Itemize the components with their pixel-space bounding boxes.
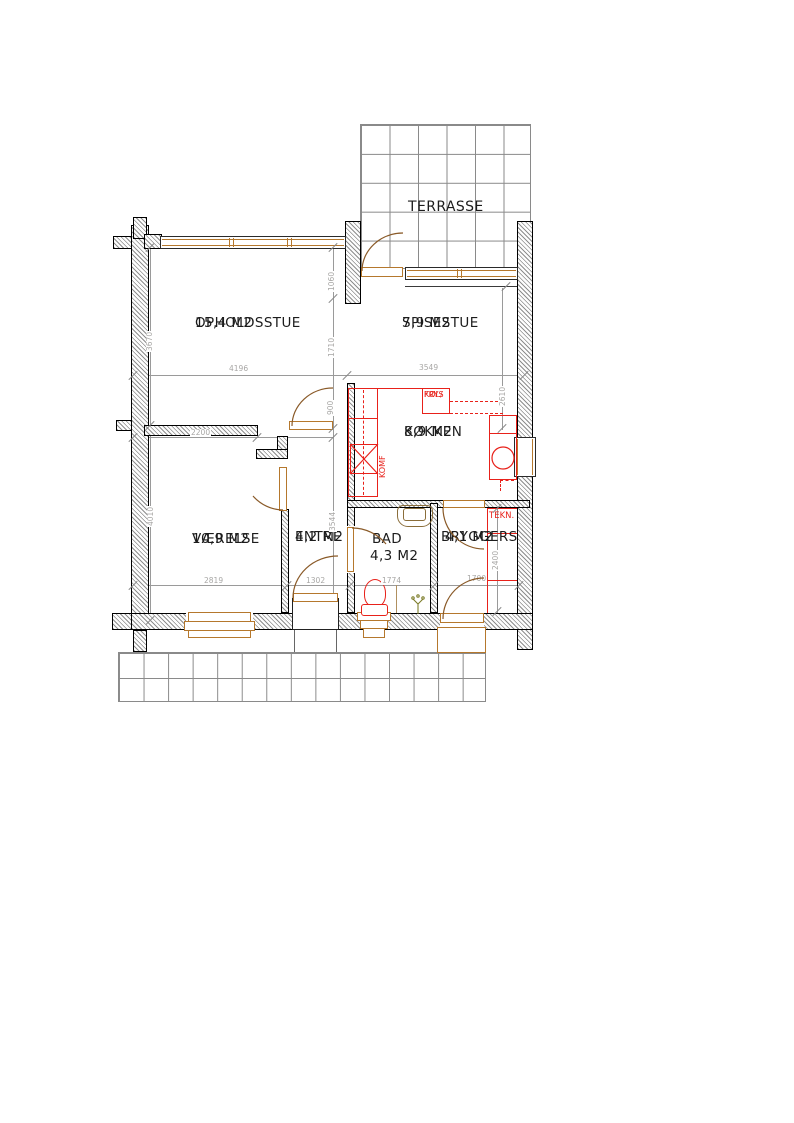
dim-bryggers-width: 1700 [466, 575, 487, 583]
bryggers-counter-top [487, 508, 517, 509]
entre-landing-edge-left [294, 630, 295, 652]
room-label-bryggers: BRYGGERS4,1 M2 [441, 529, 493, 546]
bryggers-landing [437, 627, 486, 653]
entre-landing [292, 598, 339, 630]
dim-vaerelse-width: 2819 [203, 577, 224, 585]
room-label-koekken: KØKKEN8,9 M2 [404, 424, 452, 441]
fridge-label: KØL/FRYS [424, 390, 444, 399]
wall-topleft-fin [113, 236, 132, 249]
wall-mid-stub [345, 221, 361, 304]
dim-opholdsstue-height: 3670 [146, 331, 154, 352]
dim-kitchen-offset: 900 [327, 400, 335, 416]
wall-left [131, 225, 149, 615]
dim-line-upper [133, 375, 530, 376]
washbasin-inner [403, 508, 426, 521]
opholdsstue-window [160, 236, 346, 249]
dim-line-bottom [133, 585, 524, 586]
bryggers-counter-line [487, 508, 488, 613]
kitchen-top-counter-line [378, 388, 422, 389]
kitchen-dash-sq-top [500, 480, 514, 481]
wall-entre-vaerelse [281, 509, 289, 613]
vaerelse-window-sill2 [188, 630, 251, 638]
shower-partition [396, 583, 397, 613]
room-label-bad: BAD4,3 M2 [370, 531, 418, 565]
room-label-spisestue: SPISESTUE7,9 M2 [402, 315, 450, 332]
stove-box [350, 444, 378, 474]
bad-step-3 [363, 628, 385, 638]
dim-kitchen-height: 2610 [499, 386, 507, 407]
wall-left-mid-fin [116, 420, 132, 431]
spisestue-sill-line [405, 286, 520, 287]
dim-entre-height: 3544 [329, 511, 337, 532]
kitchen-counter-right [489, 415, 517, 480]
dim-entre-width: 1302 [305, 577, 326, 585]
wall-pier-horizontal [256, 449, 288, 459]
bryggers-entrance-door-leaf [440, 613, 484, 623]
room-label-vaerelse: VÆRELSE10,9 M2 [192, 531, 249, 548]
opholdsstue-door-leaf [289, 421, 333, 430]
kitchen-dash-sq-left [500, 480, 501, 491]
dim-line-vaerelse-top [133, 437, 333, 438]
kitchen-bryggers-door-leaf [443, 500, 485, 508]
wall-bad-top [347, 500, 530, 508]
dim-line-kitchen-right [502, 288, 503, 430]
dim-bad-width: 1774 [381, 577, 402, 585]
room-area-bad: 4,3 M2 [370, 548, 418, 565]
wall-bottomleft-fin [112, 613, 132, 630]
dim-vaerelse-height: 4010 [147, 506, 155, 527]
fridge-dash-bottom [450, 413, 503, 414]
toilet-tank [361, 604, 388, 616]
dim-opholdsstue-width: 4196 [228, 365, 249, 373]
terrace-door-leaf [361, 267, 403, 277]
terrace-tiles [360, 124, 531, 269]
terrace-label: TERRASSE [408, 199, 484, 216]
wall-bottomleft-stub [133, 630, 147, 652]
entre-entrance-door-leaf [293, 593, 338, 602]
dim-terrasse-recess: 1060 [328, 271, 336, 292]
room-label-opholdsstue: OPHOLDSSTUE15,4 M2 [195, 315, 252, 332]
stove-label: KOMF [378, 455, 387, 478]
dim-spisestue-width: 3549 [418, 364, 439, 372]
fridge-dash-top [450, 401, 503, 402]
dim-spisestue-height: 1710 [328, 337, 336, 358]
bad-door-leaf [347, 527, 354, 572]
dim-bryggers-height: 2400 [492, 550, 500, 571]
kitchen-counter-dash [363, 390, 364, 495]
entre-landing-edge-right [336, 630, 337, 652]
dim-vaerelse-top-width: 2200 [190, 429, 211, 437]
floor-drain-icon [413, 599, 423, 614]
bryggers-counter-div2 [487, 580, 517, 581]
walkway-tiles [118, 652, 486, 702]
spisestue-window [405, 267, 518, 280]
floorplan-page: TERRASSE OPHOLDSSTUE15,4 M2 SPISESTUE7,9… [0, 0, 794, 1123]
kitchen-counter-right-divider [489, 433, 517, 434]
vaerelse-door-leaf [279, 467, 287, 511]
kitchen-window [514, 437, 536, 477]
